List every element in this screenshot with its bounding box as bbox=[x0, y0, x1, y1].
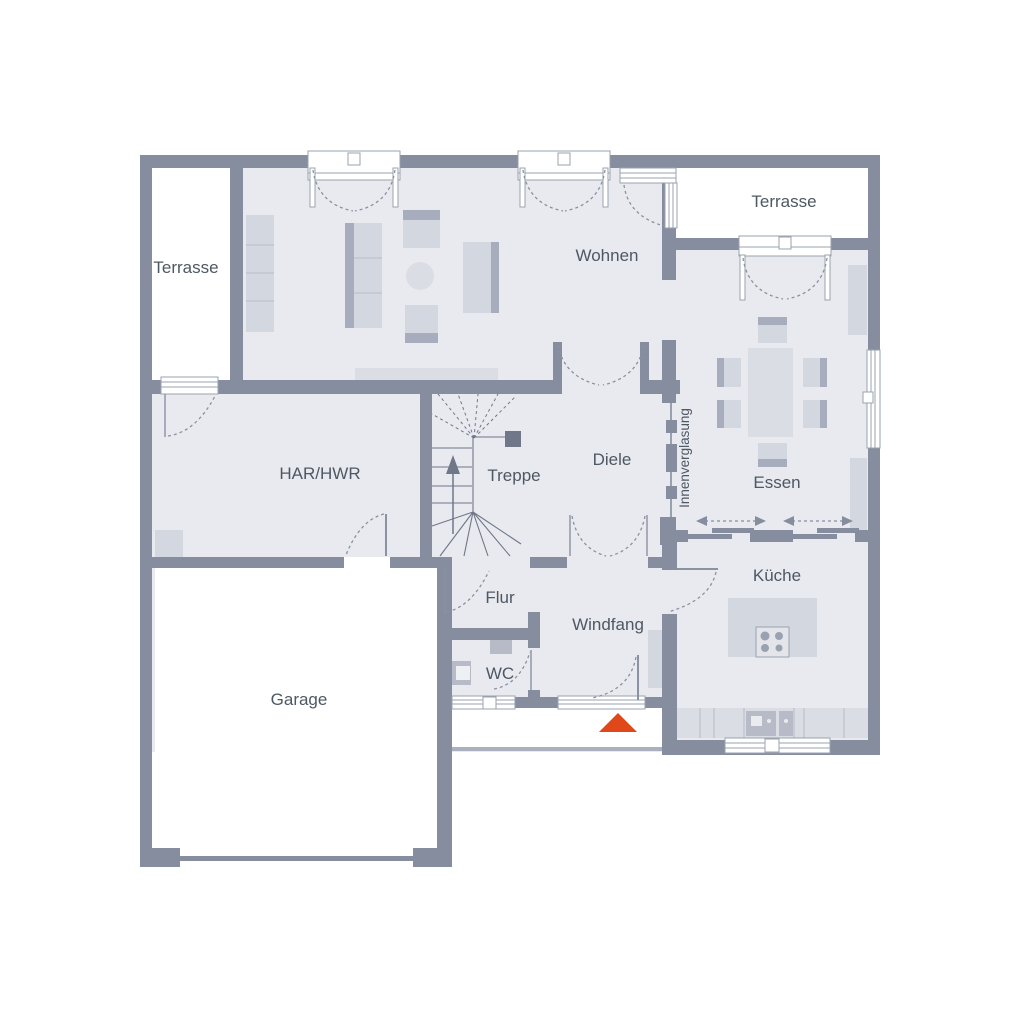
dining-chair bbox=[803, 400, 827, 428]
window-front-door bbox=[558, 696, 645, 709]
annotation-innenverglasung: Innenverglasung bbox=[677, 408, 692, 508]
kitchen-appliance-icon bbox=[779, 711, 793, 736]
garage-floor bbox=[155, 568, 437, 856]
dining-chair bbox=[758, 317, 787, 343]
floor-plan-svg: Terrasse Wohnen Terrasse Essen HAR/HWR T… bbox=[0, 0, 1024, 1024]
window-wc bbox=[452, 696, 515, 709]
room-label-flur: Flur bbox=[485, 588, 515, 607]
utility-block bbox=[155, 530, 183, 557]
floor-plan-page: Terrasse Wohnen Terrasse Essen HAR/HWR T… bbox=[0, 0, 1024, 1024]
room-label-kueche: Küche bbox=[753, 566, 801, 585]
armchair-top bbox=[403, 210, 440, 248]
dining-chair bbox=[758, 443, 787, 467]
sofa bbox=[345, 223, 382, 328]
armchair-bottom bbox=[405, 305, 438, 343]
kitchen-counter bbox=[676, 708, 868, 738]
room-label-terrasse-right: Terrasse bbox=[751, 192, 816, 211]
room-label-diele: Diele bbox=[593, 450, 632, 469]
wc-sink-icon bbox=[449, 661, 471, 685]
dining-chair bbox=[717, 358, 741, 387]
sideboard bbox=[246, 215, 274, 332]
wardrobe bbox=[648, 630, 662, 688]
room-label-essen: Essen bbox=[753, 473, 800, 492]
dining-table bbox=[748, 348, 793, 437]
porch-step bbox=[452, 747, 662, 751]
room-label-wc: WC bbox=[486, 664, 514, 683]
room-label-garage: Garage bbox=[271, 690, 328, 709]
cabinet bbox=[850, 458, 867, 530]
dining-chair bbox=[717, 400, 741, 428]
room-label-har-hwr: HAR/HWR bbox=[279, 464, 360, 483]
window-terrace-har-door bbox=[161, 377, 218, 394]
stair-newel bbox=[505, 431, 521, 447]
coffee-table bbox=[406, 262, 434, 290]
armchair-right bbox=[463, 242, 499, 313]
room-label-wohnen: Wohnen bbox=[575, 246, 638, 265]
dining-chair bbox=[803, 358, 827, 387]
kitchen-island bbox=[728, 598, 817, 657]
window-kitchen bbox=[725, 738, 830, 753]
room-label-terrasse-left: Terrasse bbox=[153, 258, 218, 277]
room-label-treppe: Treppe bbox=[487, 466, 540, 485]
cabinet bbox=[848, 265, 867, 335]
cooktop-icon bbox=[756, 627, 789, 657]
toilet-icon bbox=[490, 640, 512, 654]
kitchen-sink-icon bbox=[746, 711, 776, 736]
garage-door bbox=[180, 856, 413, 861]
room-label-windfang: Windfang bbox=[572, 615, 644, 634]
